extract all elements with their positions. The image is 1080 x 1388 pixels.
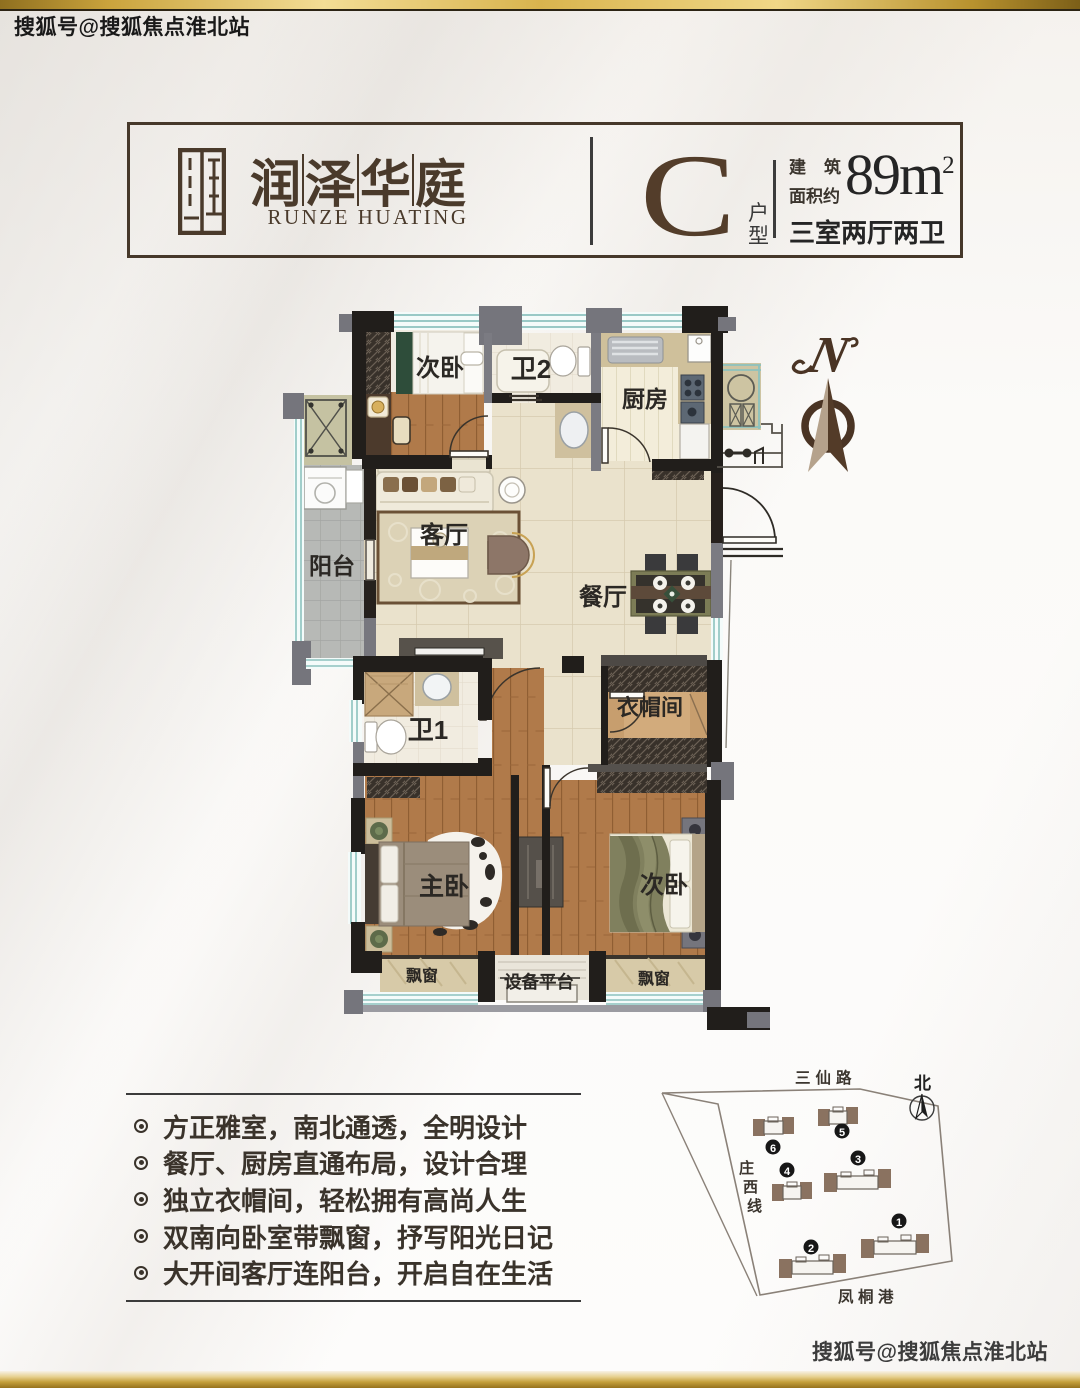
svg-text:三仙路: 三仙路 xyxy=(795,1068,857,1087)
svg-text:线: 线 xyxy=(747,1197,762,1215)
svg-text:卫2: 卫2 xyxy=(511,354,551,384)
svg-text:N: N xyxy=(802,327,857,384)
svg-text:卫1: 卫1 xyxy=(408,715,448,745)
svg-text:客厅: 客厅 xyxy=(420,521,468,549)
svg-text:6: 6 xyxy=(770,1143,776,1155)
svg-text:4: 4 xyxy=(784,1166,791,1178)
svg-text:3: 3 xyxy=(855,1154,861,1166)
svg-text:阳台: 阳台 xyxy=(309,553,355,579)
svg-text:2: 2 xyxy=(808,1243,814,1255)
svg-text:主卧: 主卧 xyxy=(419,873,469,901)
svg-text:餐厅: 餐厅 xyxy=(579,584,627,611)
svg-text:庄: 庄 xyxy=(739,1159,754,1177)
svg-text:飘窗: 飘窗 xyxy=(638,969,670,988)
svg-text:厨房: 厨房 xyxy=(622,386,668,412)
svg-text:衣帽间: 衣帽间 xyxy=(617,695,683,720)
svg-text:5: 5 xyxy=(839,1127,845,1139)
svg-text:凤桐港: 凤桐港 xyxy=(838,1287,898,1306)
svg-text:北: 北 xyxy=(914,1074,931,1093)
svg-text:西: 西 xyxy=(743,1179,758,1196)
svg-text:次卧: 次卧 xyxy=(640,872,688,899)
svg-text:设备平台: 设备平台 xyxy=(504,972,574,992)
svg-text:1: 1 xyxy=(896,1217,902,1229)
svg-text:飘窗: 飘窗 xyxy=(406,966,438,985)
svg-text:次卧: 次卧 xyxy=(416,355,464,382)
